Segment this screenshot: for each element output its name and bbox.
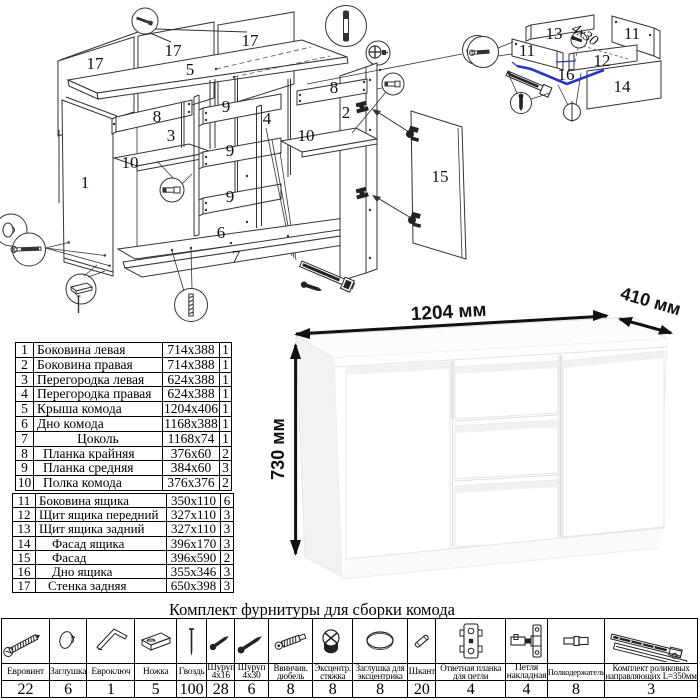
svg-text:10: 10	[122, 153, 139, 172]
svg-text:9: 9	[226, 187, 235, 206]
svg-text:9: 9	[222, 97, 231, 116]
svg-text:7: 7	[232, 247, 241, 266]
svg-text:8: 8	[330, 78, 339, 97]
svg-text:15: 15	[432, 167, 449, 186]
svg-text:17: 17	[87, 54, 105, 73]
svg-text:9: 9	[226, 141, 235, 160]
svg-text:3: 3	[167, 126, 176, 145]
svg-text:17: 17	[165, 41, 183, 60]
svg-text:11: 11	[624, 24, 640, 43]
svg-text:4: 4	[263, 109, 272, 128]
svg-text:1204 мм: 1204 мм	[410, 300, 487, 326]
svg-text:13: 13	[546, 24, 563, 43]
svg-text:2: 2	[342, 103, 351, 122]
svg-text:730 мм: 730 мм	[268, 418, 288, 480]
svg-text:17: 17	[242, 31, 260, 50]
svg-text:5: 5	[186, 60, 195, 79]
svg-text:12: 12	[594, 51, 611, 70]
svg-text:1: 1	[81, 173, 90, 192]
svg-text:8: 8	[153, 107, 162, 126]
svg-text:11: 11	[519, 41, 535, 60]
svg-text:6: 6	[217, 223, 226, 242]
svg-text:10: 10	[298, 126, 315, 145]
svg-text:14: 14	[614, 77, 632, 96]
svg-text:410 мм: 410 мм	[618, 283, 683, 319]
